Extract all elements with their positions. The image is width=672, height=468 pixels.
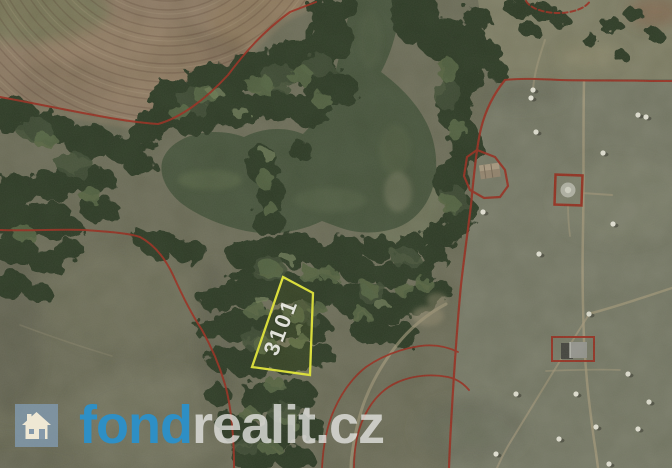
aerial-photo <box>0 0 672 468</box>
grain-overlay <box>0 0 672 468</box>
satellite-view: 3101 fondrealit.cz <box>0 0 672 468</box>
